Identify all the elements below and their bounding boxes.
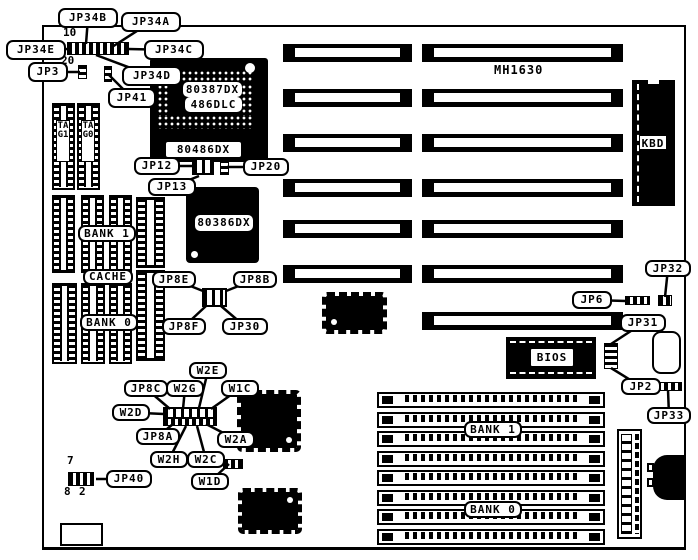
jp2-callout: JP2 <box>621 378 661 395</box>
motherboard-diagram: MH1630 10 20 80387DX 486DLC 80486DX 8038… <box>0 0 698 560</box>
jp3-callout: JP3 <box>28 62 68 82</box>
jp6-callout: JP6 <box>572 291 612 309</box>
w1c-callout: W1C <box>221 380 259 397</box>
bank1-dip-label: BANK 1 <box>78 225 136 242</box>
jp41-callout: JP41 <box>108 88 156 108</box>
jp32-callout: JP32 <box>645 260 691 277</box>
w2c-callout: W2C <box>187 451 225 468</box>
jp34c-callout: JP34C <box>144 40 204 60</box>
w2a-callout: W2A <box>217 431 255 448</box>
jp8a-callout: JP8A <box>136 428 180 445</box>
w2d-callout: W2D <box>112 404 150 421</box>
jp34b-callout: JP34B <box>58 8 118 28</box>
w1d-callout: W1D <box>191 473 229 490</box>
w2g-callout: W2G <box>166 380 204 397</box>
jp8b-callout: JP8B <box>233 271 277 288</box>
jp40-callout: JP40 <box>106 470 152 488</box>
bank0-dip-label: BANK 0 <box>80 314 138 331</box>
cache-label: CACHE <box>83 269 133 285</box>
jp12-callout: JP12 <box>134 157 180 175</box>
jp20-callout: JP20 <box>243 158 289 176</box>
jp34e-callout: JP34E <box>6 40 66 60</box>
jp8f-callout: JP8F <box>162 318 206 335</box>
w2e-callout: W2E <box>189 362 227 379</box>
jp8c-callout: JP8C <box>124 380 168 397</box>
jp30-callout: JP30 <box>222 318 268 335</box>
jp34a-callout: JP34A <box>121 12 181 32</box>
w2h-callout: W2H <box>150 451 188 468</box>
jp34d-callout: JP34D <box>122 66 182 86</box>
jp8e-callout: JP8E <box>152 271 196 288</box>
jp31-callout: JP31 <box>620 314 666 332</box>
jp13-callout: JP13 <box>148 178 196 196</box>
jp33-callout: JP33 <box>647 407 691 424</box>
